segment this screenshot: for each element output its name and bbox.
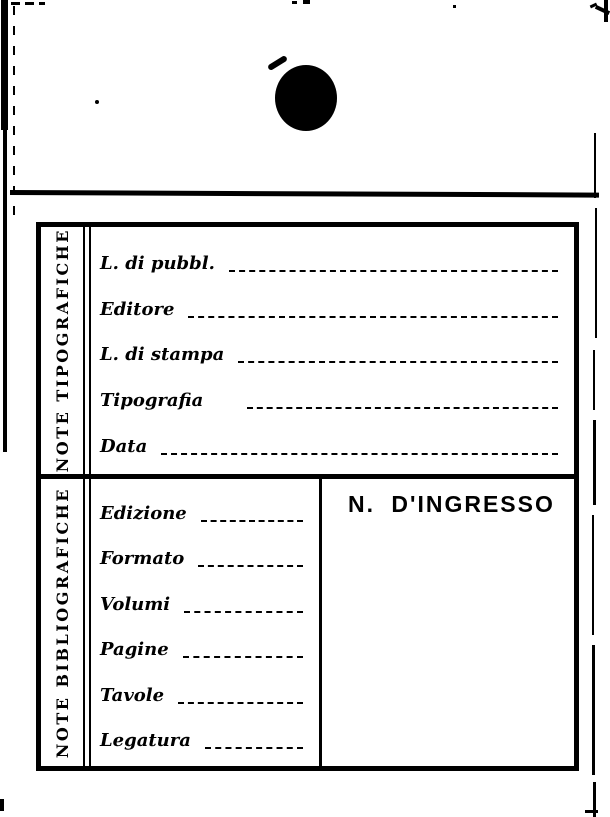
field-row-l-di-pubbl: L. di pubbl. [100,233,558,279]
field-label-data: Data [100,438,147,456]
field-line-pagine [183,656,303,658]
field-line-edizione [201,520,303,522]
hole-punch-mark [275,65,337,131]
field-label-legatura: Legatura [100,732,191,750]
field-row-volumi: Volumi [100,574,303,620]
section-note-tipografiche: NOTE TIPOGRAFICHE L. di pubbl. Editore L… [41,227,574,474]
scan-top-right-mark [604,0,608,22]
field-line-data [161,453,558,455]
field-line-volumi [184,611,303,613]
scan-edge-right-line [593,420,596,505]
scan-edge-left-bar [1,0,8,130]
field-row-l-di-stampa: L. di stampa [100,325,558,371]
field-label-editore: Editore [100,301,174,319]
section-note-bibliografiche: NOTE BIBLIOGRAFICHE Edizione Formato Vol… [41,479,574,766]
scan-edge-right-line [593,350,595,410]
hole-punch-hook [267,55,288,71]
field-label-pagine: Pagine [100,641,169,659]
field-row-legatura: Legatura [100,711,303,757]
section-title-vertical: NOTE BIBLIOGRAFICHE [53,487,72,758]
section-title-vertical: NOTE TIPOGRAFICHE [53,228,72,472]
field-line-l-di-pubbl [229,270,558,272]
catalog-card-box: NOTE TIPOGRAFICHE L. di pubbl. Editore L… [36,222,579,771]
ingresso-heading: N. D'INGRESSO [348,491,555,518]
field-line-l-di-stampa [238,361,558,363]
ingresso-cell: N. D'INGRESSO [322,479,574,766]
field-line-formato [198,565,303,567]
scan-bottom-right-hook [585,810,598,813]
double-rule [83,479,91,766]
fields-tipografiche: L. di pubbl. Editore L. di stampa Tipogr… [91,227,574,474]
field-row-pagine: Pagine [100,620,303,666]
field-row-tavole: Tavole [100,665,303,711]
field-line-tipografia [247,407,558,409]
scan-speck [303,0,310,4]
field-label-volumi: Volumi [100,596,170,614]
scan-speck [292,1,297,4]
field-row-edizione: Edizione [100,483,303,529]
horizontal-rule [10,190,599,198]
scan-edge-right-line [594,133,596,198]
field-line-legatura [205,747,303,749]
scan-speck [453,5,456,8]
scan-edge-right-line [592,515,594,635]
scan-speck [95,100,99,104]
field-label-l-di-stampa: L. di stampa [100,346,224,364]
scan-top-dashes [11,2,45,5]
double-rule [83,227,91,474]
section-side-column: NOTE BIBLIOGRAFICHE [41,479,83,766]
section-side-column: NOTE TIPOGRAFICHE [41,227,83,474]
scan-edge-right-line [595,208,597,338]
field-label-edizione: Edizione [100,505,187,523]
fields-bibliografiche: Edizione Formato Volumi Pagine Tavole Le… [91,479,319,766]
field-label-l-di-pubbl: L. di pubbl. [100,255,215,273]
field-label-formato: Formato [100,550,184,568]
field-row-tipografia: Tipografia [100,370,558,416]
field-row-formato: Formato [100,529,303,575]
scan-edge-left-bar-lower [3,120,7,452]
field-row-editore: Editore [100,279,558,325]
field-line-editore [188,316,558,318]
scan-bottom-left-mark [0,799,4,811]
field-label-tavole: Tavole [100,687,164,705]
field-line-tavole [178,702,303,704]
scan-edge-right-line [592,645,595,775]
field-row-data: Data [100,416,558,462]
field-label-tipografia: Tipografia [100,392,203,410]
scan-left-dashed-line [13,6,15,216]
